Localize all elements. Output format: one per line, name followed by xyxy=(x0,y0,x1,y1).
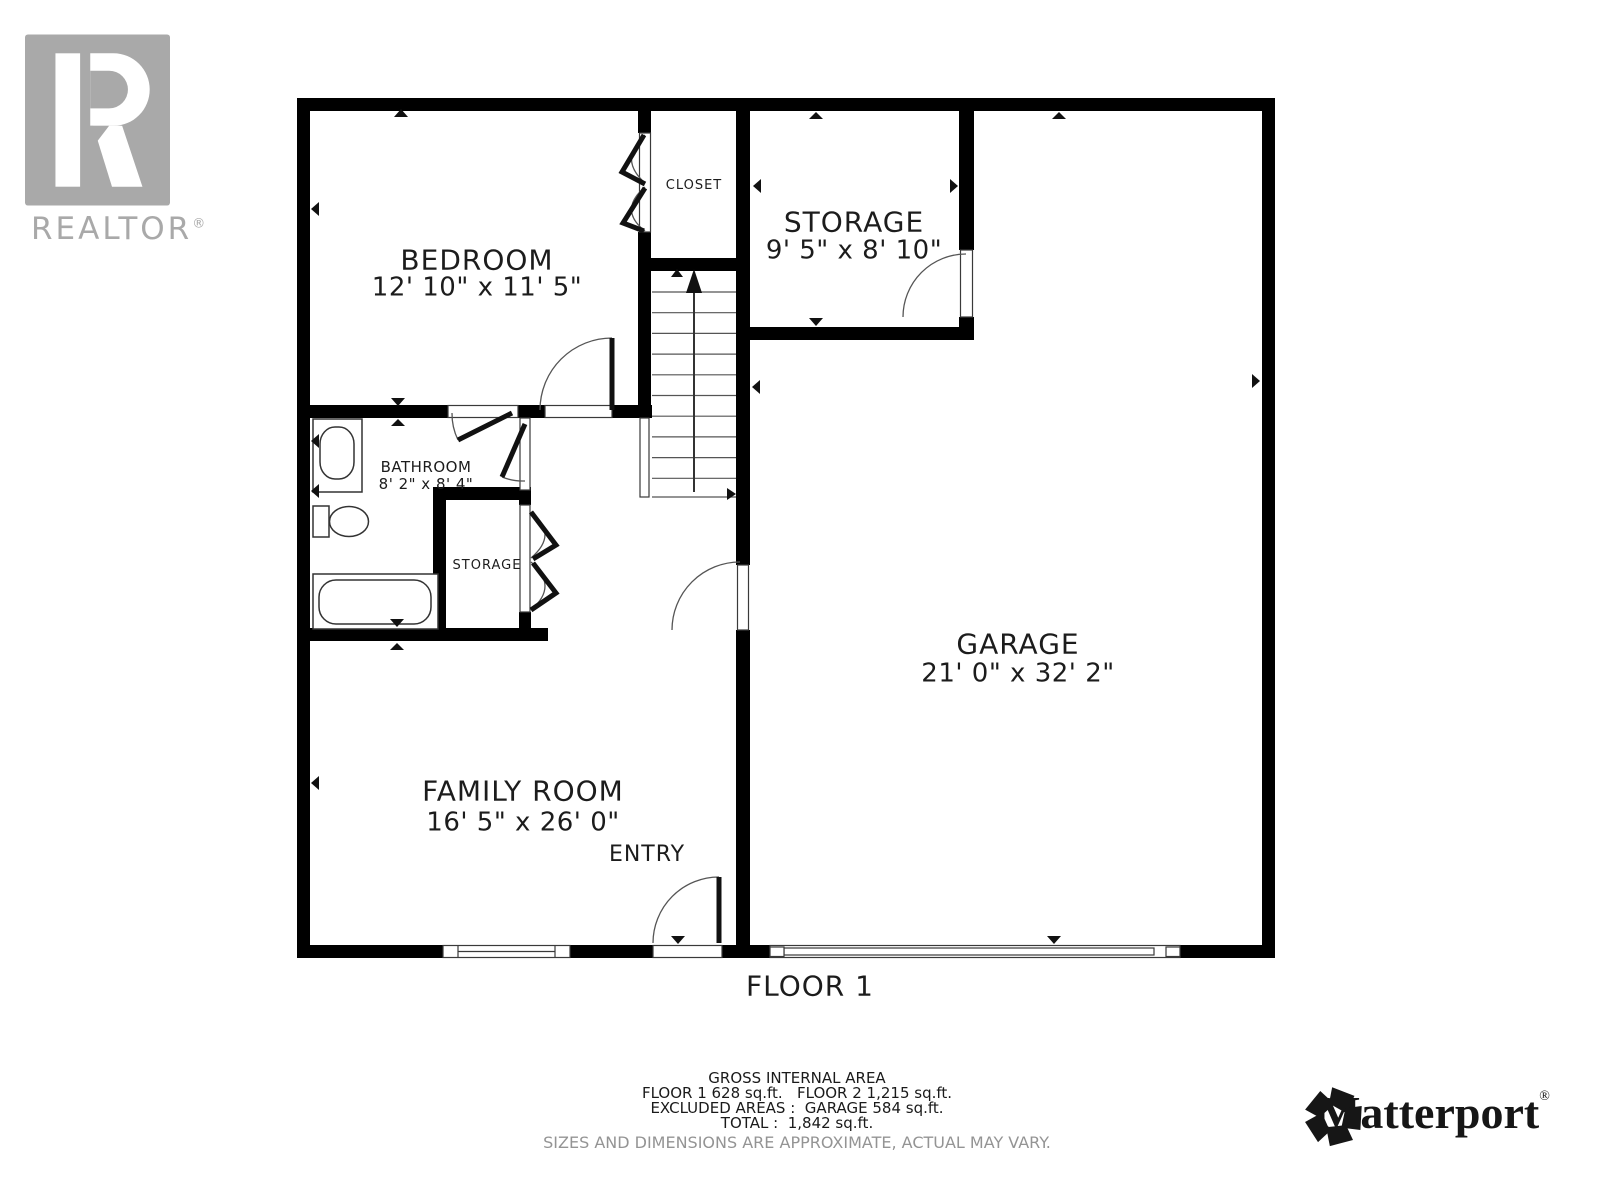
fixture-sink xyxy=(313,419,362,492)
area-summary: GROSS INTERNAL AREA FLOOR 1 628 sq.ft. F… xyxy=(642,1071,952,1131)
storage-east-marker-icon xyxy=(950,179,958,193)
garage-door-frame xyxy=(738,565,749,630)
floor-plan-drawing xyxy=(0,0,1600,1200)
fixture-toilet xyxy=(313,506,369,537)
bathroom-label: BATHROOM xyxy=(381,459,472,476)
bedroom-dims: 12' 10" x 11' 5" xyxy=(372,274,582,303)
garage-south-marker-icon xyxy=(1047,936,1061,944)
entry-door-arc xyxy=(653,877,719,943)
garage-door-arc xyxy=(672,562,740,630)
storage-south-marker-icon xyxy=(809,318,823,326)
storage-bifold-leaf-1 xyxy=(531,512,556,559)
bathroom-dims: 8' 2" x 8' 4" xyxy=(379,476,474,493)
storage-closet-label: STORAGE xyxy=(453,559,522,573)
garage-label: GARAGE xyxy=(956,630,1079,661)
bedroom-left-marker-icon xyxy=(311,202,319,216)
storage-west-marker-icon xyxy=(753,179,761,193)
matterport-logo: Matterport® xyxy=(1303,1086,1550,1139)
fixture-bathtub xyxy=(313,574,438,629)
garage-dims: 21' 0" x 32' 2" xyxy=(921,660,1114,689)
garage-east-marker-icon xyxy=(1252,374,1260,388)
bathroom-top-marker-icon xyxy=(391,419,405,426)
matterport-pinwheel-icon xyxy=(1303,1086,1365,1148)
storage-north-marker-icon xyxy=(809,112,823,119)
realtor-wordmark: REALTOR® xyxy=(31,211,208,247)
disclaimer-text: SIZES AND DIMENSIONS ARE APPROXIMATE, AC… xyxy=(543,1133,1051,1152)
bathroom-fixtures xyxy=(313,419,438,629)
bedroom-door-opening xyxy=(545,406,612,418)
storage-bifold-leaf-2 xyxy=(531,563,556,610)
floor-title: FLOOR 1 xyxy=(746,972,874,1003)
staircase xyxy=(652,269,736,500)
stair-railing xyxy=(640,418,649,497)
stair-up-arrow-icon xyxy=(686,269,702,293)
garage-west-marker-icon xyxy=(752,380,760,394)
garage-vehicle-door xyxy=(770,946,1180,958)
closet-label: CLOSET xyxy=(666,179,723,193)
stair-bottom-arrow-icon xyxy=(727,488,736,500)
realtor-r-icon xyxy=(25,33,170,207)
storage-room-door-frame xyxy=(961,250,973,317)
family-top-marker-icon xyxy=(390,643,404,650)
family-left-marker-icon xyxy=(311,776,319,790)
area-summary-total: TOTAL : 1,842 sq.ft. xyxy=(642,1116,952,1131)
entry-label: ENTRY xyxy=(609,843,685,867)
storage-closet-door-frame xyxy=(520,505,530,612)
bedroom-door-arc xyxy=(540,338,612,410)
bedroom-bottom-marker-icon xyxy=(391,398,405,406)
storage-upper-dims: 9' 5" x 8' 10" xyxy=(766,237,942,266)
storage-upper-label: STORAGE xyxy=(784,208,924,239)
family-room-dims: 16' 5" x 26' 0" xyxy=(426,809,619,838)
entry-door-opening xyxy=(653,946,722,958)
garage-north-marker-icon xyxy=(1052,112,1066,119)
family-room-window xyxy=(443,946,570,958)
family-bottom-marker-icon xyxy=(671,936,685,944)
family-room-label: FAMILY ROOM xyxy=(422,777,624,808)
floor-plan-page: { "branding": { "realtor_logo_text": "RE… xyxy=(0,0,1600,1200)
